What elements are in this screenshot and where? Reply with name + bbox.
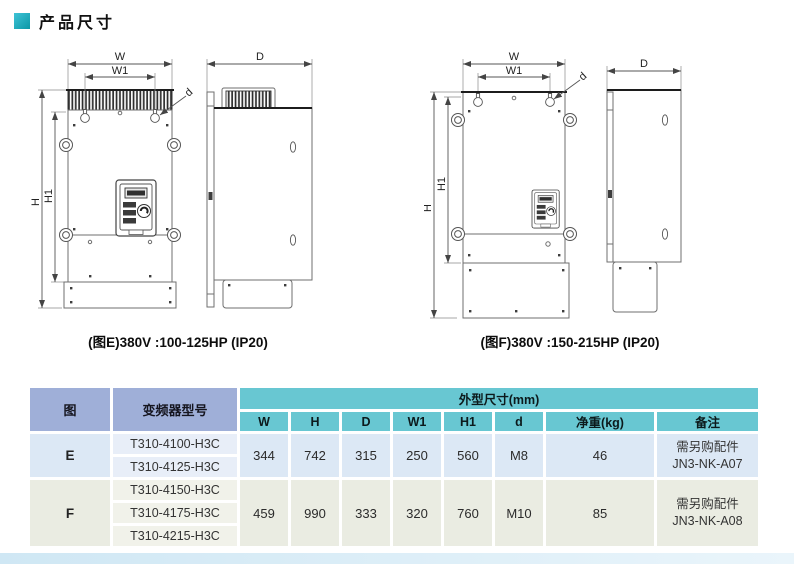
col-header-h1: H1 [444, 412, 492, 431]
lifting-ring [168, 229, 181, 242]
dim-label-h: H [30, 198, 42, 206]
lifting-ring [168, 139, 181, 152]
lifting-ring [60, 139, 73, 152]
remark-cell: 需另购配件 JN3-NK-A08 [657, 480, 758, 546]
keypad-panel [532, 190, 559, 228]
dim-label-w: W [115, 51, 126, 63]
lifting-ring [564, 228, 577, 241]
col-header-remark: 备注 [657, 412, 758, 431]
figure-e-side-drawing: D [200, 44, 316, 316]
dim-label-w: W [509, 51, 520, 63]
col-header-w: W [240, 412, 288, 431]
dim-value-cell: 742 [291, 434, 339, 477]
dim-value-cell: 990 [291, 480, 339, 546]
dim-value-cell: 333 [342, 480, 390, 546]
lifting-ring [452, 114, 465, 127]
dim-label-w1: W1 [506, 65, 523, 77]
dim-value-cell: M10 [495, 480, 543, 546]
dim-value-cell: 315 [342, 434, 390, 477]
dim-label-h: H [424, 204, 434, 212]
mounting-plate [607, 92, 613, 262]
dim-value-cell: M8 [495, 434, 543, 477]
remark-cell: 需另购配件 JN3-NK-A07 [657, 434, 758, 477]
dim-label-depth: D [256, 51, 264, 63]
enclosure-body-side [214, 108, 312, 280]
figure-cell: F [30, 480, 110, 546]
dimensions-table: 图 变频器型号 外型尺寸(mm) W H D W1 H1 d 净重(kg) 备注… [30, 388, 758, 546]
keypad-panel [116, 180, 156, 236]
conduit-box-side [223, 280, 292, 308]
enclosure-body-side [607, 90, 681, 262]
col-header-hole: d [495, 412, 543, 431]
col-header-weight: 净重(kg) [546, 412, 654, 431]
model-cell: T310-4215-H3C [113, 526, 237, 546]
col-header-w1: W1 [393, 412, 441, 431]
col-header-d: D [342, 412, 390, 431]
heatsink-fins [66, 90, 174, 110]
dim-label-depth: D [640, 58, 648, 70]
figure-cell: E [30, 434, 110, 477]
dim-label-h1: H1 [436, 177, 448, 191]
figure-e-front-drawing: W W1 H H1 d [30, 44, 222, 316]
dim-label-w1: W1 [112, 65, 129, 77]
col-group-outline-dims: 外型尺寸(mm) [240, 388, 758, 409]
model-cell: T310-4125-H3C [113, 457, 237, 477]
model-cell: T310-4100-H3C [113, 434, 237, 454]
dim-value-cell: 560 [444, 434, 492, 477]
figure-f-caption: (图F)380V :150-215HP (IP20) [420, 331, 720, 351]
conduit-box [463, 263, 569, 318]
lifting-ring [564, 114, 577, 127]
col-header-figure: 图 [30, 388, 110, 431]
dim-value-cell: 85 [546, 480, 654, 546]
enclosure-body [463, 92, 565, 263]
dim-value-cell: 320 [393, 480, 441, 546]
dim-label-h1: H1 [43, 189, 55, 203]
figure-f-side-drawing: D [590, 44, 694, 330]
dim-value-cell: 46 [546, 434, 654, 477]
conduit-box [64, 282, 176, 308]
col-header-h: H [291, 412, 339, 431]
figure-e-caption: (图E)380V :100-125HP (IP20) [28, 331, 328, 351]
dim-value-cell: 459 [240, 480, 288, 546]
dim-value-cell: 760 [444, 480, 492, 546]
model-cell: T310-4175-H3C [113, 503, 237, 523]
page-title: 产品尺寸 [39, 9, 115, 33]
page-header: 产品尺寸 [14, 9, 115, 33]
col-header-model: 变频器型号 [113, 388, 237, 431]
footer-accent-bar [0, 553, 794, 564]
conduit-box-side [613, 262, 657, 312]
section-bullet-icon [14, 13, 30, 29]
dim-value-cell: 344 [240, 434, 288, 477]
dim-value-cell: 250 [393, 434, 441, 477]
model-cell: T310-4150-H3C [113, 480, 237, 500]
lifting-ring [60, 229, 73, 242]
lifting-ring [452, 228, 465, 241]
